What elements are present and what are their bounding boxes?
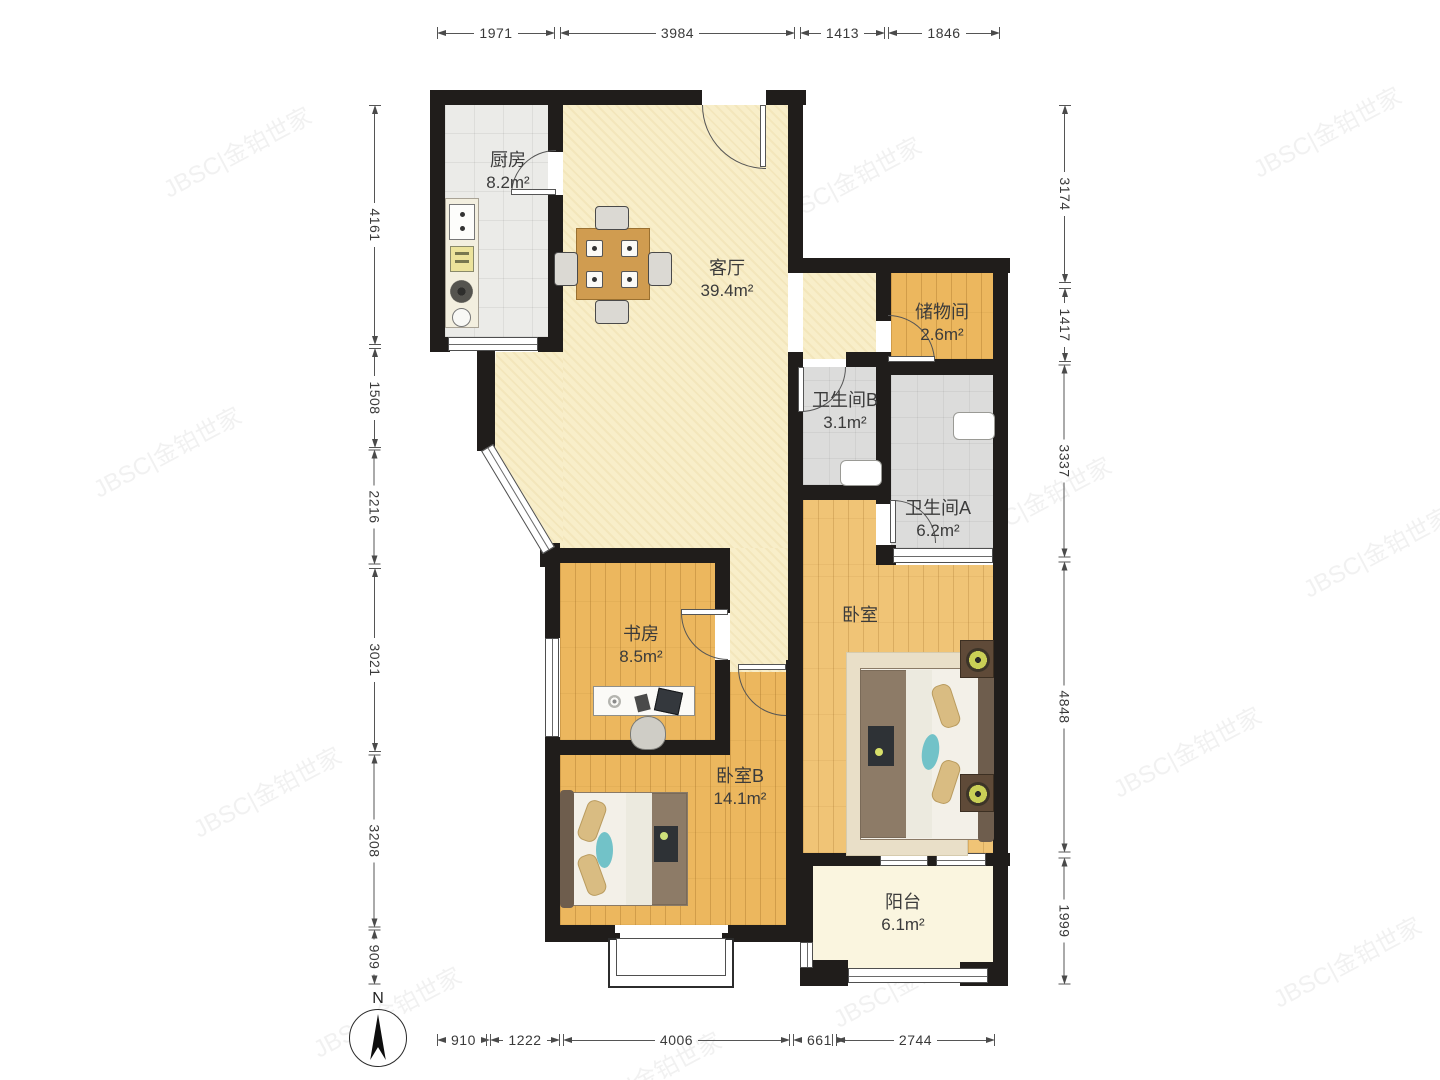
kitchen-stove: [450, 246, 474, 272]
dining-chair: [595, 206, 629, 230]
place-setting: [621, 271, 638, 288]
dimension-bottom-4: 2744: [836, 1030, 995, 1050]
floor-living-room: [563, 105, 788, 548]
storage-door-leaf: [888, 356, 935, 362]
window-balcony-side: [800, 942, 813, 968]
desk-plant-icon: [608, 695, 621, 708]
kitchen-sink-unit: [449, 204, 475, 240]
desk-chair-back-icon: [634, 694, 650, 713]
study-desk: [593, 686, 695, 716]
window-study: [545, 638, 559, 737]
bathroom-a-door-leaf: [890, 500, 896, 543]
knob-icon: [460, 212, 465, 217]
wall: [715, 548, 730, 613]
dining-table: [576, 228, 650, 300]
bathroom-b-fixture: [840, 460, 882, 486]
wall: [545, 548, 730, 563]
wall: [728, 925, 803, 942]
wall: [986, 853, 1010, 866]
kitchen-basin-icon: [452, 308, 471, 327]
room-label-bathroom-a: 卫生间A6.2m²: [905, 496, 971, 543]
nightstand: [960, 774, 994, 812]
place-setting: [586, 240, 603, 257]
bedroom-b-throw-panel: [654, 826, 678, 862]
place-setting: [586, 271, 603, 288]
wall: [430, 337, 450, 352]
wall: [876, 273, 891, 321]
lamp-icon: [966, 782, 990, 806]
bed-headboard: [978, 666, 994, 842]
room-label-study: 书房8.5m²: [619, 622, 662, 669]
study-door-leaf: [681, 609, 728, 615]
bed-cushion: [596, 832, 613, 868]
room-label-bedroom: 卧室: [842, 603, 878, 627]
floor-center-corridor: [730, 548, 788, 672]
dining-chair: [554, 252, 578, 286]
dimension-right-3: 4848: [1055, 562, 1075, 853]
entry-door-leaf: [760, 105, 766, 167]
wall: [477, 347, 495, 451]
dimension-left-2: 2216: [365, 450, 385, 565]
stove-burner-icon: [455, 252, 469, 255]
floor-plan-canvas: JBSC|金铂世家JBSC|金铂世家JBSC|金铂世家JBSC|金铂世家JBSC…: [0, 0, 1440, 1080]
wall: [545, 560, 560, 638]
stove-burner-icon: [455, 260, 469, 263]
dimension-right-1: 1417: [1055, 288, 1075, 362]
dimension-top-2: 1413: [800, 23, 885, 43]
bed-throw-panel: [868, 726, 894, 766]
window-kitchen: [448, 337, 538, 351]
wall: [548, 90, 563, 152]
room-label-kitchen: 厨房8.2m²: [486, 148, 529, 195]
nightstand: [960, 640, 994, 678]
bay-window-inner: [616, 938, 726, 976]
room-label-bedroom-b: 卧室B14.1m²: [714, 764, 767, 811]
knob-icon: [460, 226, 465, 231]
watermark: JBSC|金铂世家: [86, 370, 294, 500]
dimension-top-0: 1971: [437, 23, 555, 43]
bathroom-b-door-leaf: [798, 367, 804, 412]
laptop-icon: [654, 688, 683, 716]
throw-dot-icon: [875, 748, 883, 756]
wall: [545, 737, 560, 942]
compass-circle: [349, 1009, 407, 1067]
window-bathroom-a: [893, 548, 993, 563]
wall: [545, 925, 615, 942]
wall: [430, 90, 445, 352]
bedroom-b-door-leaf: [738, 664, 786, 670]
room-label-bathroom-b: 卫生间B3.1m²: [812, 388, 878, 435]
room-label-storage: 储物间2.6m²: [915, 300, 969, 347]
dimension-bottom-1: 1222: [490, 1030, 560, 1050]
dimension-bottom-3: 661: [793, 1030, 833, 1050]
window-balcony-front: [848, 968, 988, 983]
dimension-left-5: 909: [365, 930, 385, 985]
bedroom-b-headboard: [560, 790, 574, 908]
dimension-left-0: 4161: [365, 105, 385, 345]
dimension-top-3: 1846: [888, 23, 1000, 43]
wall: [800, 853, 813, 945]
watermark: JBSC|金铂世家: [1296, 470, 1440, 600]
study-chair: [630, 716, 666, 750]
compass-needle-icon: [365, 1014, 391, 1060]
room-label-balcony: 阳台6.1m²: [881, 890, 924, 937]
compass-north-label: N: [348, 990, 408, 1008]
dimension-left-3: 3021: [365, 568, 385, 752]
wall: [430, 90, 702, 105]
watermark: JBSC|金铂世家: [1106, 670, 1314, 800]
wall: [788, 485, 891, 500]
floor-entry-corridor: [803, 273, 876, 359]
room-label-living: 客厅39.4m²: [701, 256, 754, 303]
kitchen-burner-icon: [450, 280, 473, 303]
dimension-right-0: 3174: [1055, 105, 1075, 283]
dimension-left-1: 1508: [365, 348, 385, 448]
lamp-icon: [966, 648, 990, 672]
dimension-right-4: 1999: [1055, 858, 1075, 985]
dining-chair: [648, 252, 672, 286]
watermark: JBSC|金铂世家: [1246, 50, 1440, 180]
floor-bedroom-hall: [803, 500, 876, 565]
dining-chair: [595, 300, 629, 324]
dimension-top-1: 3984: [560, 23, 795, 43]
dimension-bottom-0: 910: [437, 1030, 487, 1050]
compass: N: [348, 990, 408, 1067]
dimension-right-2: 3337: [1055, 365, 1075, 558]
dimension-bottom-2: 4006: [563, 1030, 790, 1050]
dimension-left-4: 3208: [365, 755, 385, 928]
bedroom-b-runner: [626, 793, 652, 905]
bathroom-a-fixture: [953, 412, 995, 440]
throw-dot-icon: [660, 832, 668, 840]
watermark: JBSC|金铂世家: [1266, 880, 1440, 1010]
place-setting: [621, 240, 638, 257]
wall: [788, 90, 803, 273]
watermark: JBSC|金铂世家: [186, 710, 394, 840]
watermark: JBSC|金铂世家: [156, 70, 364, 200]
wall: [788, 258, 1010, 273]
